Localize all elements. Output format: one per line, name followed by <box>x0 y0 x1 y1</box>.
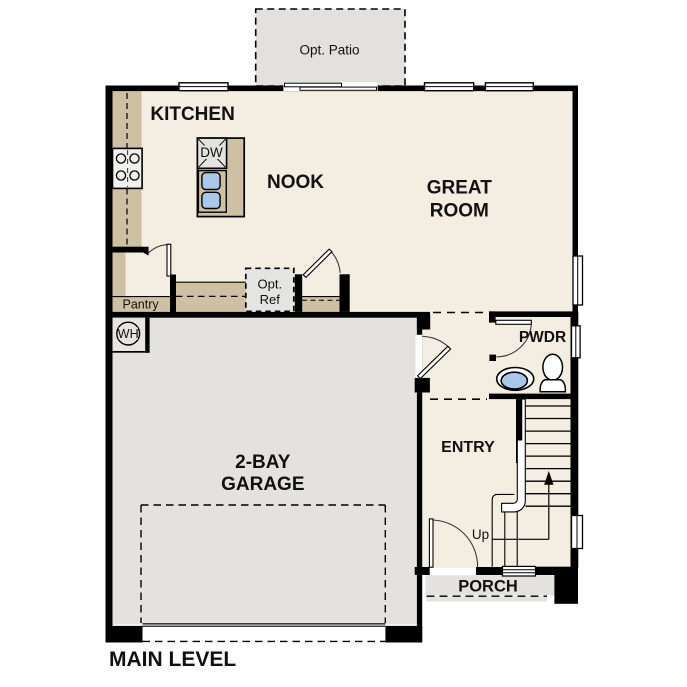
svg-text:PORCH: PORCH <box>458 578 518 596</box>
svg-text:GREAT: GREAT <box>427 178 492 199</box>
svg-text:2-BAY: 2-BAY <box>235 452 291 473</box>
svg-text:MAIN LEVEL: MAIN LEVEL <box>109 648 236 671</box>
svg-text:GARAGE: GARAGE <box>221 474 304 495</box>
svg-text:ROOM: ROOM <box>430 201 489 222</box>
svg-text:Ref: Ref <box>260 292 281 307</box>
svg-text:Opt.: Opt. <box>258 277 283 292</box>
svg-text:PWDR: PWDR <box>519 329 566 346</box>
svg-text:ENTRY: ENTRY <box>441 439 495 456</box>
svg-text:DW: DW <box>200 145 223 160</box>
svg-text:Up: Up <box>472 527 489 542</box>
svg-text:NOOK: NOOK <box>267 172 324 193</box>
svg-text:KITCHEN: KITCHEN <box>150 104 234 125</box>
svg-text:Pantry: Pantry <box>123 298 160 312</box>
svg-text:Opt. Patio: Opt. Patio <box>299 43 359 58</box>
svg-text:WH: WH <box>118 327 139 341</box>
